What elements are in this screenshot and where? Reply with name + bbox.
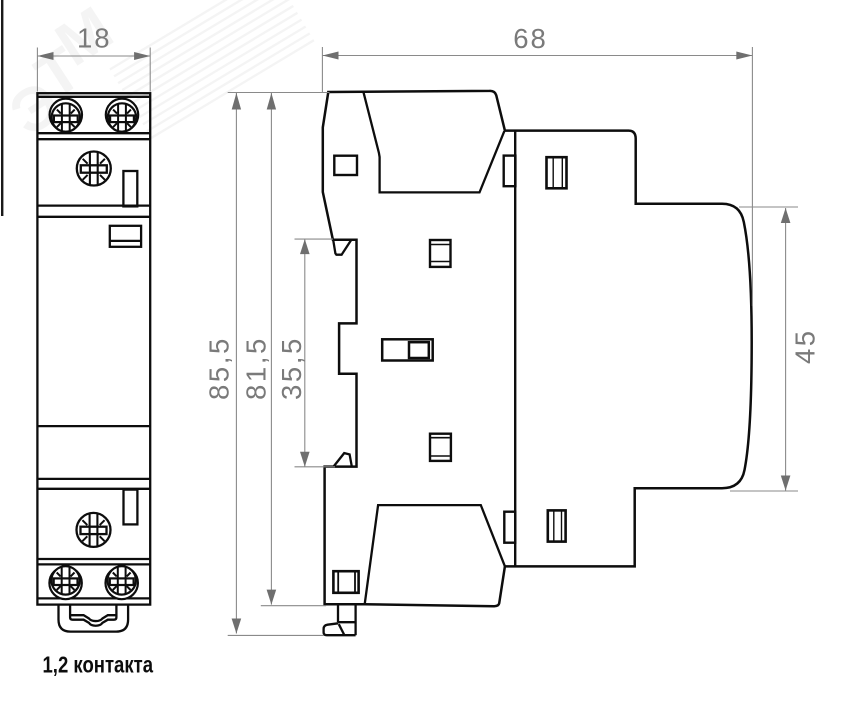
- svg-text:68: 68: [513, 23, 548, 54]
- svg-text:45: 45: [790, 329, 821, 364]
- svg-text:1,2 контакта: 1,2 контакта: [43, 652, 154, 678]
- svg-text:18: 18: [77, 23, 112, 54]
- svg-text:81,5: 81,5: [241, 336, 272, 400]
- svg-text:35,5: 35,5: [276, 336, 307, 400]
- svg-text:85,5: 85,5: [204, 336, 235, 400]
